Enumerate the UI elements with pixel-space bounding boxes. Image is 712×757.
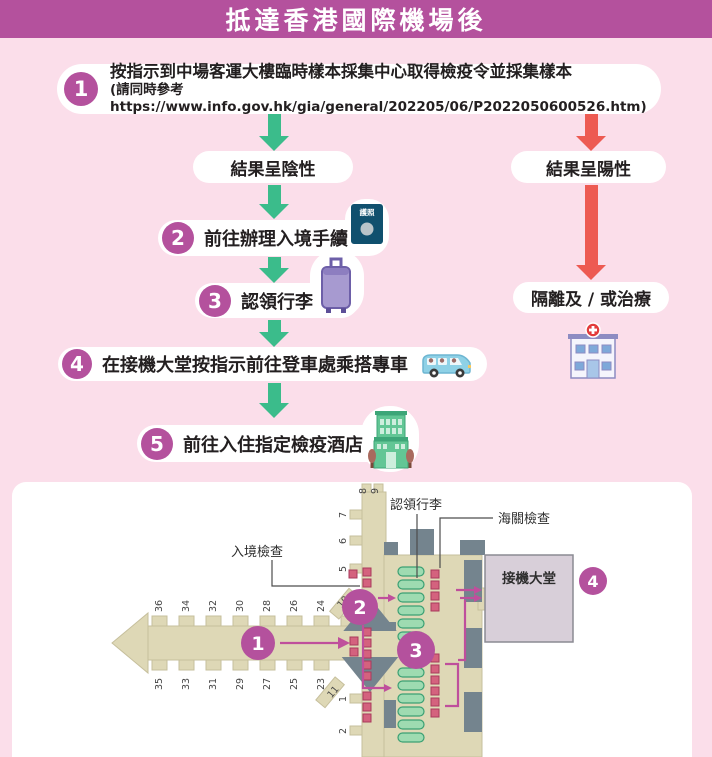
step3-number-badge: 3 xyxy=(199,285,231,317)
svg-text:31: 31 xyxy=(208,678,219,690)
svg-text:8: 8 xyxy=(358,488,369,494)
baggage-claim-label: 認領行李 xyxy=(390,497,442,513)
luggage-icon xyxy=(318,254,354,319)
step4-number-badge: 4 xyxy=(62,349,92,379)
svg-text:35: 35 xyxy=(154,678,165,690)
step1-line1: 按指示到中場客運大樓臨時樣本採集中心取得檢疫令並採集樣本 xyxy=(110,62,661,82)
svg-text:1: 1 xyxy=(251,633,264,655)
step2-number-badge: 2 xyxy=(162,222,194,254)
step1-line2-url: (請同時參考 https://www.info.gov.hk/gia/gener… xyxy=(110,82,661,116)
arrow-shaft xyxy=(268,185,281,204)
svg-text:29: 29 xyxy=(235,678,246,690)
arrow-head xyxy=(259,403,289,418)
airport-map-panel: 接機大堂 36 34 32 30 28 26 24 12 35 33 31 29… xyxy=(12,482,692,757)
svg-text:36: 36 xyxy=(154,600,165,612)
step5-number-badge: 5 xyxy=(141,428,173,460)
svg-text:24: 24 xyxy=(316,600,327,612)
svg-text:6: 6 xyxy=(338,538,349,544)
svg-text:27: 27 xyxy=(262,678,273,690)
isolation-pill: 隔離及 / 或治療 xyxy=(513,282,669,313)
hotel-icon xyxy=(368,411,414,473)
arrow-shaft xyxy=(268,257,281,268)
arrow-shaft xyxy=(585,114,598,136)
gate-numbers-top: 36 34 32 30 28 26 24 12 xyxy=(154,600,354,612)
step5-label: 前往入住指定檢疫酒店 xyxy=(183,431,363,457)
arrow-shaft xyxy=(268,383,281,403)
svg-text:34: 34 xyxy=(181,600,192,612)
arrow-negative-2 xyxy=(259,185,289,219)
gate-numbers-bottom: 35 33 31 29 27 25 23 xyxy=(154,678,327,690)
arrival-hall-label: 接機大堂 xyxy=(502,570,556,587)
step4-label: 在接機大堂按指示前往登車處乘搭專車 xyxy=(102,351,408,377)
svg-text:2: 2 xyxy=(338,728,349,734)
svg-text:3: 3 xyxy=(409,640,422,662)
step3-label: 認領行李 xyxy=(241,288,313,314)
svg-text:2: 2 xyxy=(353,597,366,619)
airport-map: 接機大堂 36 34 32 30 28 26 24 12 35 33 31 29… xyxy=(12,482,692,757)
result-positive-pill: 結果呈陽性 xyxy=(511,151,666,183)
step1-number-badge: 1 xyxy=(64,72,98,106)
immigration-label: 入境檢查 xyxy=(231,544,283,560)
svg-text:33: 33 xyxy=(181,678,192,690)
svg-text:32: 32 xyxy=(208,600,219,612)
svg-text:25: 25 xyxy=(289,678,300,690)
svg-text:1: 1 xyxy=(338,696,349,702)
result-negative-pill: 結果呈陰性 xyxy=(193,151,353,183)
arrow-head xyxy=(259,204,289,219)
svg-text:28: 28 xyxy=(262,600,273,612)
svg-text:9: 9 xyxy=(370,488,381,494)
arrow-positive-2 xyxy=(576,185,606,280)
arrow-negative-1 xyxy=(259,114,289,151)
step1-pill: 1 按指示到中場客運大樓臨時樣本採集中心取得檢疫令並採集樣本 (請同時參考 ht… xyxy=(57,64,661,114)
arrow-negative-5 xyxy=(259,383,289,418)
arrival-hall-area xyxy=(485,555,573,642)
step5-pill: 5 前往入住指定檢疫酒店 xyxy=(137,425,403,462)
customs-label: 海關檢查 xyxy=(498,511,550,527)
arrow-shaft xyxy=(268,320,281,332)
shuttle-bus-icon xyxy=(421,347,473,383)
svg-text:5: 5 xyxy=(338,566,349,572)
step1-text: 按指示到中場客運大樓臨時樣本採集中心取得檢疫令並採集樣本 (請同時參考 http… xyxy=(110,62,661,116)
arrow-shaft xyxy=(268,114,281,136)
svg-text:7: 7 xyxy=(338,512,349,518)
arrow-positive-1 xyxy=(576,114,606,151)
arrow-head xyxy=(576,136,606,151)
arrow-head xyxy=(259,136,289,151)
hospital-icon xyxy=(566,322,620,384)
step2-label: 前往辦理入境手續 xyxy=(204,225,348,251)
svg-text:4: 4 xyxy=(587,572,598,591)
arrow-shaft xyxy=(585,185,598,265)
svg-text:26: 26 xyxy=(289,600,300,612)
arrow-head xyxy=(576,265,606,280)
header-bar: 抵達香港國際機場後 xyxy=(0,0,712,38)
page-title: 抵達香港國際機場後 xyxy=(225,1,486,37)
arrow-head xyxy=(259,268,289,283)
arrow-negative-4 xyxy=(259,320,289,347)
arrow-head xyxy=(259,332,289,347)
passport-text: 護照 xyxy=(360,207,375,217)
infographic-root: 抵達香港國際機場後 1 按指示到中場客運大樓臨時樣本採集中心取得檢疫令並採集樣本… xyxy=(0,0,712,757)
passport-icon: 護照 xyxy=(351,204,383,248)
arrow-negative-3 xyxy=(259,257,289,283)
svg-text:23: 23 xyxy=(316,678,327,690)
svg-text:30: 30 xyxy=(235,600,246,612)
